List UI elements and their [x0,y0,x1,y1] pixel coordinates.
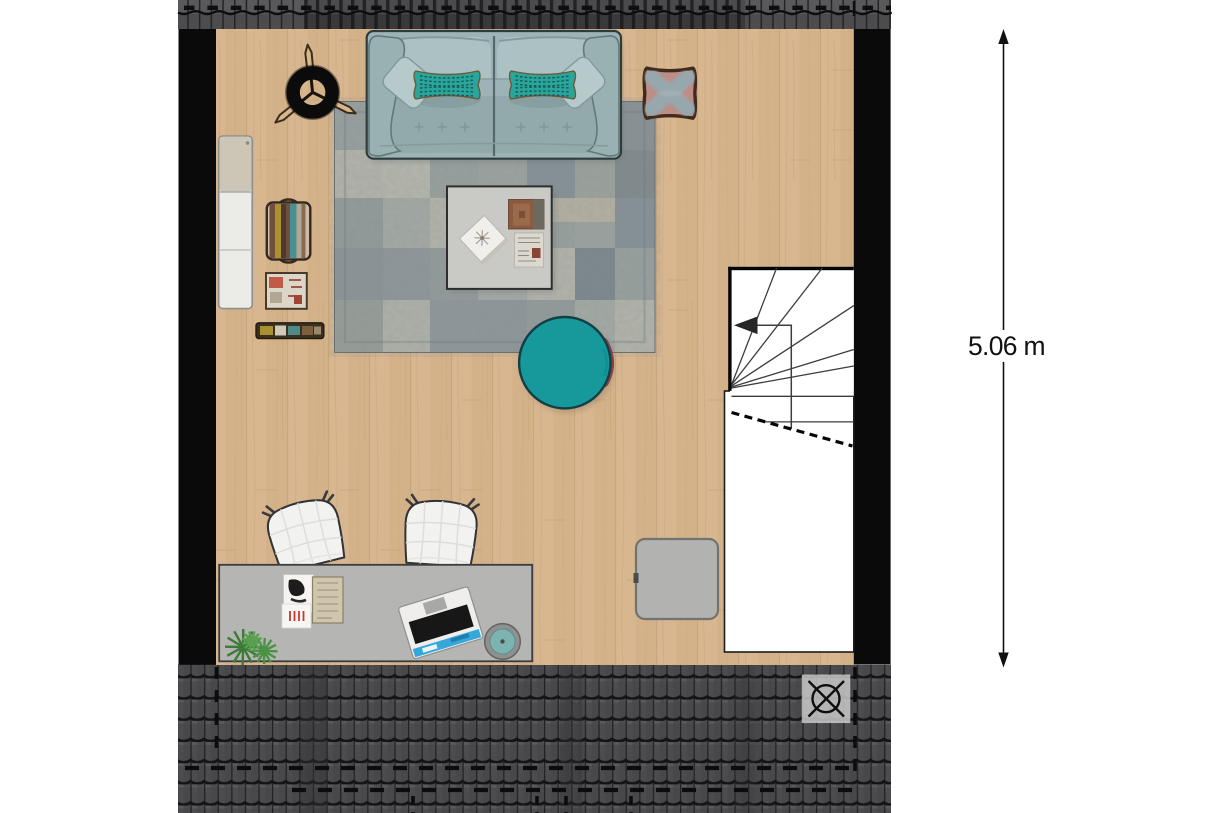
svg-text:5.06 m: 5.06 m [968,331,1045,361]
